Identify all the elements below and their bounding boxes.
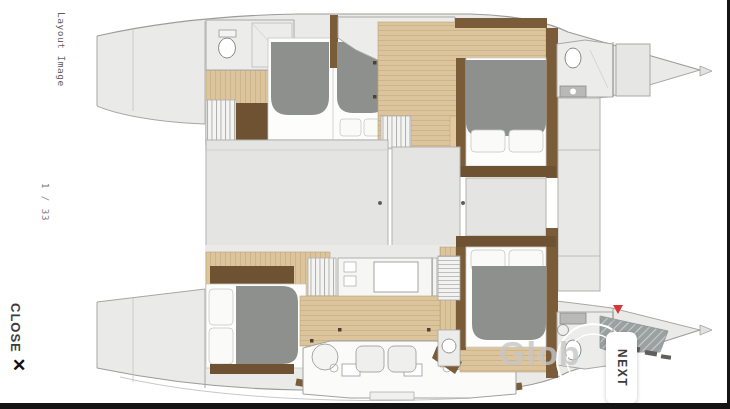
bed-duvet (472, 266, 546, 340)
toilet-icon (219, 38, 236, 58)
bed-duvet (271, 42, 329, 115)
stairs-aft-top (206, 100, 236, 144)
bow-locker-top (616, 44, 650, 96)
locker (438, 256, 460, 300)
stove-icon (374, 262, 418, 292)
toilet-icon (565, 48, 581, 68)
cockpit-table (312, 344, 338, 370)
side-deck (558, 98, 600, 291)
bed-duvet (466, 60, 546, 136)
stairs-mid-bottom (308, 258, 336, 296)
next-button[interactable]: NEXT (606, 332, 637, 404)
watermark: Glob (499, 334, 580, 373)
bed-duvet (236, 286, 298, 364)
next-label: NEXT (615, 349, 629, 387)
bathroom-fore-top (557, 40, 650, 97)
layout-image-viewer: Glob Layout Image 1 / 33 CLOSE ✕ NEXT (0, 0, 730, 409)
bottom-edge-bar (0, 403, 730, 409)
